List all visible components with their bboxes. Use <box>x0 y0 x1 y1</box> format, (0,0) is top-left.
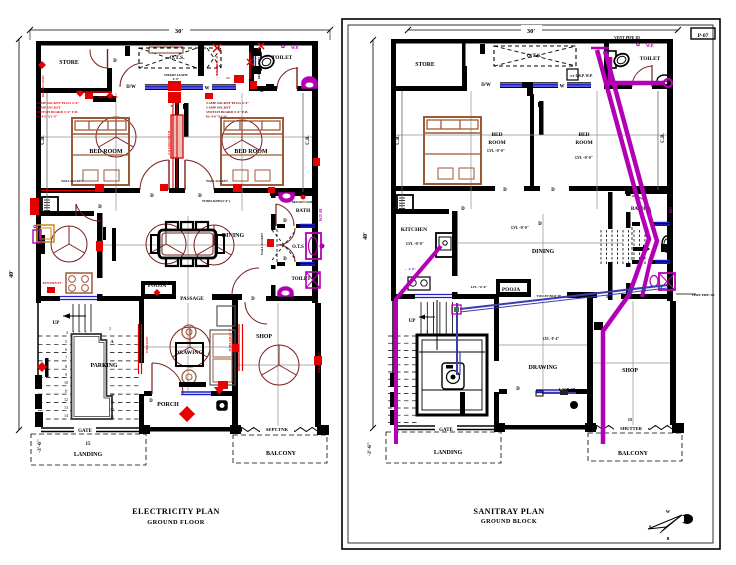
svg-text:D: D <box>475 295 479 300</box>
svg-text:SANITRAY PLAN: SANITRAY PLAN <box>473 507 544 516</box>
svg-text:GATE: GATE <box>78 429 92 434</box>
svg-text:C.B.: C.B. <box>396 135 401 145</box>
svg-text:GROUND BLOCK: GROUND BLOCK <box>481 518 537 525</box>
svg-text:P-07: P-07 <box>698 33 709 39</box>
svg-text:TUBELIGHT(4'-0"): TUBELIGHT(4'-0") <box>202 199 230 203</box>
svg-text:TOILET: TOILET <box>291 277 311 282</box>
svg-text:16: 16 <box>110 415 114 420</box>
svg-text:POOJA: POOJA <box>502 287 520 293</box>
svg-text:30': 30' <box>527 28 536 35</box>
svg-text:SWITCH BOARD 4'-0" E.B.: SWITCH BOARD 4'-0" E.B. <box>206 110 248 114</box>
svg-text:6: 6 <box>65 347 67 352</box>
svg-text:40': 40' <box>9 270 15 278</box>
svg-text:O.T.S.: O.T.S. <box>527 53 543 59</box>
svg-text:FS: FS <box>226 76 230 80</box>
svg-text:D: D <box>551 188 555 193</box>
svg-text:12: 12 <box>110 407 114 412</box>
svg-text:4 AMP SOCKET PLUG 4'-0": 4 AMP SOCKET PLUG 4'-0" <box>206 101 249 105</box>
svg-text:2'-6 VARANDAH: 2'-6 VARANDAH <box>167 130 171 155</box>
svg-text:DINING: DINING <box>532 249 555 255</box>
svg-text:-3'-6": -3'-6" <box>367 442 373 456</box>
svg-text:LVL +0'-0": LVL +0'-0" <box>406 242 424 246</box>
svg-text:KITCHEN: KITCHEN <box>401 227 427 233</box>
svg-text:UP: UP <box>53 320 61 326</box>
svg-text:BED: BED <box>491 132 502 138</box>
svg-text:LVL +0'-0": LVL +0'-0" <box>487 149 505 153</box>
svg-text:WALL SOCKET: WALL SOCKET <box>318 353 321 374</box>
svg-text:ELECTRICITY PLAN: ELECTRICITY PLAN <box>132 507 220 516</box>
svg-text:BED: BED <box>578 132 589 138</box>
svg-text:2': 2' <box>171 104 174 108</box>
svg-text:B: B <box>667 536 670 541</box>
svg-text:GATE: GATE <box>439 428 453 433</box>
svg-text:14: 14 <box>64 413 68 418</box>
svg-text:BALCONY: BALCONY <box>618 451 649 457</box>
svg-text:WALL SOCKET: WALL SOCKET <box>206 179 228 183</box>
svg-text:4: 4 <box>66 331 68 335</box>
svg-text:3: 3 <box>426 330 428 334</box>
svg-text:LVL +0'-0": LVL +0'-0" <box>471 285 488 289</box>
svg-text:15: 15 <box>628 417 633 422</box>
svg-text:O.T.S: O.T.S <box>292 245 304 250</box>
svg-text:12: 12 <box>64 397 68 402</box>
svg-text:SEPT.TNK: SEPT.TNK <box>266 427 289 432</box>
svg-text:5 AMP SOCKET: 5 AMP SOCKET <box>36 106 62 110</box>
svg-text:SHUTTER: SHUTTER <box>620 426 643 431</box>
svg-text:UP: UP <box>409 318 417 324</box>
svg-text:8: 8 <box>65 364 67 369</box>
svg-text:D: D <box>283 219 287 224</box>
svg-text:D: D <box>503 188 507 193</box>
svg-text:PASSAGE: PASSAGE <box>180 296 204 302</box>
svg-text:7: 7 <box>65 356 67 361</box>
svg-text:-3'-6": -3'-6" <box>37 439 43 453</box>
svg-text:D: D <box>283 257 287 262</box>
svg-text:W: W <box>560 85 565 90</box>
svg-text:LVL +0'-0": LVL +0'-0" <box>511 226 529 230</box>
svg-text:KITCHEN PT: KITCHEN PT <box>43 281 62 285</box>
svg-text:BED ROOM: BED ROOM <box>234 149 268 155</box>
svg-text:VENT PIPE 3D: VENT PIPE 3D <box>614 36 640 40</box>
svg-text:D/W: D/W <box>481 83 491 88</box>
svg-text:SHOP: SHOP <box>622 368 638 374</box>
svg-text:10: 10 <box>110 392 114 397</box>
svg-text:C.B.: C.B. <box>306 135 311 145</box>
svg-text:D: D <box>149 399 153 404</box>
svg-text:SWITCH BOARD 4'-0" E.B.: SWITCH BOARD 4'-0" E.B. <box>36 110 78 114</box>
svg-text:PORCH: PORCH <box>157 402 179 408</box>
svg-text:9: 9 <box>65 372 67 377</box>
svg-text:11: 11 <box>64 389 68 394</box>
svg-text:WALL SOCKET: WALL SOCKET <box>260 233 264 255</box>
svg-text:TOILET: TOILET <box>272 55 293 61</box>
svg-text:← 4'-0": ← 4'-0" <box>404 267 416 271</box>
svg-text:LVL -0'-6": LVL -0'-6" <box>543 337 560 341</box>
svg-text:PARKING: PARKING <box>91 363 118 369</box>
svg-text:BRACKET LIGHT: BRACKET LIGHT <box>292 201 314 204</box>
svg-text:TUBELIGHT: TUBELIGHT <box>146 336 149 353</box>
svg-text:SMART LIGHT: SMART LIGHT <box>98 96 118 99</box>
svg-text:D: D <box>98 205 102 210</box>
svg-text:4 AMP SOCKET PLUG 4'-0": 4 AMP SOCKET PLUG 4'-0" <box>36 101 79 105</box>
svg-text:11: 11 <box>110 400 114 405</box>
svg-text:ROOM: ROOM <box>488 140 505 146</box>
svg-text:TUBELIGHT 4'-0": TUBELIGHT 4'-0" <box>229 328 232 352</box>
svg-text:D: D <box>461 207 465 212</box>
svg-text:EL-4'6"X3'-0": EL-4'6"X3'-0" <box>206 115 228 119</box>
svg-text:STORE: STORE <box>59 60 79 66</box>
svg-text:C.B.: C.B. <box>661 133 666 143</box>
svg-text:W.P.: W.P. <box>646 43 654 48</box>
svg-text:D: D <box>260 89 264 94</box>
svg-text:30': 30' <box>175 28 184 35</box>
svg-text:5: 5 <box>65 339 67 344</box>
svg-text:D: D <box>150 194 154 199</box>
svg-text:13: 13 <box>64 405 68 410</box>
svg-text:EL-4'6"X3'-0": EL-4'6"X3'-0" <box>36 115 58 119</box>
svg-text:D: D <box>113 59 117 64</box>
svg-text:ROOM: ROOM <box>575 140 592 146</box>
svg-text:BATH: BATH <box>296 208 310 214</box>
svg-text:I.W.P. W.P.: I.W.P. W.P. <box>576 74 593 78</box>
svg-text:D: D <box>538 222 542 227</box>
svg-text:W: W <box>205 87 210 92</box>
svg-text:15: 15 <box>86 442 92 447</box>
svg-text:SHOP: SHOP <box>256 334 272 340</box>
svg-text:5 AMP SOCKET: 5 AMP SOCKET <box>206 106 232 110</box>
svg-text:2: 2 <box>109 327 111 331</box>
svg-text:STORE: STORE <box>415 62 435 68</box>
svg-text:LVL +0'-0": LVL +0'-0" <box>575 156 593 160</box>
svg-text:LANDING: LANDING <box>434 450 463 456</box>
svg-text:4'-0": 4'-0" <box>173 77 180 81</box>
svg-text:TOILET: TOILET <box>640 56 661 62</box>
svg-text:VERT PIPE 3D: VERT PIPE 3D <box>692 293 715 297</box>
svg-text:D: D <box>516 387 520 392</box>
svg-text:BRACKET: BRACKET <box>216 61 219 75</box>
svg-text:D: D <box>251 297 255 302</box>
svg-text:DRAWING: DRAWING <box>529 365 558 371</box>
svg-text:C.B.: C.B. <box>41 135 46 145</box>
svg-text:10: 10 <box>64 380 68 385</box>
svg-text:40': 40' <box>363 232 369 240</box>
svg-text:68!: 68! <box>668 207 673 214</box>
svg-text:W.P. 68: W.P. 68 <box>318 209 323 222</box>
svg-text:BRACKET LIGHT: BRACKET LIGHT <box>258 57 261 79</box>
svg-text:D/W: D/W <box>126 85 136 90</box>
svg-text:WALL SOCKET: WALL SOCKET <box>61 179 83 183</box>
svg-text:O.T.S.: O.T.S. <box>170 55 186 61</box>
svg-text:LANDING: LANDING <box>74 452 103 458</box>
svg-text:BALCONY: BALCONY <box>266 451 297 457</box>
svg-text:POOJA: POOJA <box>148 283 166 289</box>
svg-text:GROUND FLOOR: GROUND FLOOR <box>147 519 205 526</box>
svg-text:BRACKET LIGHT: BRACKET LIGHT <box>42 75 45 97</box>
svg-text:W.P.: W.P. <box>291 45 299 50</box>
